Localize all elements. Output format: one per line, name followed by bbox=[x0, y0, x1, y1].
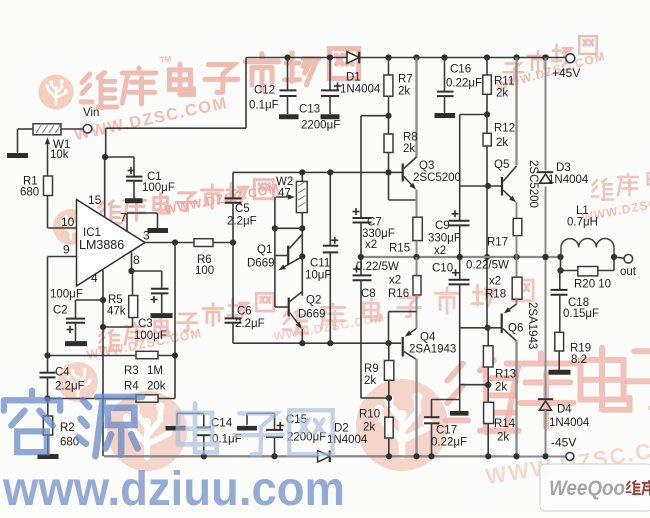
svg-text:100: 100 bbox=[195, 265, 214, 277]
svg-text:2SC5200: 2SC5200 bbox=[413, 172, 461, 184]
svg-text:100μF: 100μF bbox=[134, 330, 167, 342]
svg-text:1N4004: 1N4004 bbox=[548, 174, 589, 186]
svg-text:R19: R19 bbox=[570, 343, 591, 355]
svg-text:7: 7 bbox=[120, 211, 127, 225]
svg-text:100μF: 100μF bbox=[142, 182, 175, 194]
svg-text:0.22μF: 0.22μF bbox=[446, 78, 482, 90]
svg-text:C13: C13 bbox=[299, 104, 320, 116]
svg-text:C12: C12 bbox=[254, 85, 275, 97]
svg-text:1N4004: 1N4004 bbox=[549, 417, 590, 429]
svg-text:C5: C5 bbox=[235, 203, 250, 215]
svg-text:Q2: Q2 bbox=[306, 295, 321, 307]
svg-text:2.2μF: 2.2μF bbox=[235, 318, 265, 330]
svg-text:0.22μF: 0.22μF bbox=[431, 437, 467, 449]
svg-text:R14: R14 bbox=[494, 418, 516, 430]
svg-text:0.7μH: 0.7μH bbox=[567, 217, 598, 229]
svg-text:C16: C16 bbox=[450, 64, 471, 76]
svg-text:x2: x2 bbox=[389, 275, 401, 287]
svg-text:C8: C8 bbox=[361, 288, 376, 300]
svg-text:D4: D4 bbox=[557, 404, 572, 416]
svg-text:R12: R12 bbox=[494, 123, 515, 135]
svg-text:15: 15 bbox=[88, 193, 102, 207]
svg-text:8: 8 bbox=[133, 253, 140, 267]
svg-text:2SA1943: 2SA1943 bbox=[409, 344, 456, 356]
svg-text:WeeQoo: WeeQoo bbox=[549, 477, 625, 500]
svg-text:3: 3 bbox=[143, 229, 150, 243]
svg-text:680: 680 bbox=[20, 187, 39, 199]
svg-text:20k: 20k bbox=[147, 381, 166, 393]
svg-text:D1: D1 bbox=[346, 72, 361, 84]
svg-text:2k: 2k bbox=[364, 375, 376, 387]
svg-text:L1: L1 bbox=[576, 205, 589, 217]
svg-text:R15: R15 bbox=[389, 243, 410, 255]
svg-text:R10: R10 bbox=[359, 409, 380, 421]
svg-text:W2: W2 bbox=[276, 176, 293, 188]
svg-text:Q3: Q3 bbox=[419, 160, 434, 172]
svg-text:8.2: 8.2 bbox=[571, 354, 587, 366]
svg-text:x2: x2 bbox=[365, 239, 377, 251]
svg-text:C10: C10 bbox=[432, 263, 453, 275]
svg-text:1N4004: 1N4004 bbox=[340, 84, 381, 96]
svg-text:C4: C4 bbox=[55, 367, 70, 379]
svg-text:R13: R13 bbox=[495, 369, 516, 381]
svg-text:R5: R5 bbox=[108, 294, 123, 306]
svg-text:TM: TM bbox=[159, 54, 172, 65]
svg-text:47k: 47k bbox=[107, 306, 126, 318]
svg-text:R3: R3 bbox=[124, 365, 139, 377]
svg-text:R4: R4 bbox=[124, 381, 139, 393]
svg-text:2.2μF: 2.2μF bbox=[227, 216, 257, 228]
svg-text:C2: C2 bbox=[53, 305, 68, 317]
svg-text:C9: C9 bbox=[435, 220, 450, 232]
svg-text:0.15μF: 0.15μF bbox=[563, 308, 599, 320]
svg-text:R11: R11 bbox=[494, 76, 514, 88]
svg-text:R18: R18 bbox=[485, 289, 506, 301]
svg-text:0.22/5W: 0.22/5W bbox=[466, 260, 509, 272]
svg-text:D2: D2 bbox=[334, 423, 349, 435]
svg-text:47: 47 bbox=[278, 188, 291, 200]
svg-text:D669: D669 bbox=[298, 309, 326, 321]
svg-text:R9: R9 bbox=[364, 363, 379, 375]
svg-text:C17: C17 bbox=[436, 425, 457, 437]
svg-text:10μF: 10μF bbox=[305, 270, 331, 282]
svg-text:2k: 2k bbox=[398, 86, 410, 98]
svg-text:100μF: 100μF bbox=[50, 289, 83, 301]
svg-text:x2: x2 bbox=[489, 276, 501, 288]
svg-text:2k: 2k bbox=[495, 382, 507, 394]
svg-text:2k: 2k bbox=[496, 137, 508, 149]
svg-text:R8: R8 bbox=[403, 132, 418, 144]
svg-text:R7: R7 bbox=[398, 74, 413, 86]
svg-text:D3: D3 bbox=[556, 162, 571, 174]
svg-text:4: 4 bbox=[91, 271, 98, 285]
svg-text:1M: 1M bbox=[147, 365, 163, 377]
svg-text:Q6: Q6 bbox=[508, 323, 523, 335]
svg-text:2SA1943: 2SA1943 bbox=[526, 302, 538, 349]
svg-text:2k: 2k bbox=[363, 422, 375, 434]
svg-text:x2: x2 bbox=[434, 245, 446, 257]
svg-text:10k: 10k bbox=[50, 149, 69, 161]
svg-text:10: 10 bbox=[61, 215, 75, 229]
svg-text:2.2μF: 2.2μF bbox=[55, 381, 85, 393]
svg-text:C3: C3 bbox=[138, 318, 153, 330]
svg-text:0.22/5W: 0.22/5W bbox=[356, 261, 399, 273]
svg-text:Q5: Q5 bbox=[494, 159, 509, 171]
svg-text:2200μF: 2200μF bbox=[301, 120, 340, 132]
svg-text:R17: R17 bbox=[487, 237, 508, 249]
svg-text:-45V: -45V bbox=[551, 436, 576, 450]
svg-text:2k: 2k bbox=[403, 143, 415, 155]
svg-text:2SC5200: 2SC5200 bbox=[527, 160, 539, 208]
svg-text:R16: R16 bbox=[388, 288, 409, 300]
svg-text:out: out bbox=[620, 266, 637, 278]
svg-text:2k: 2k bbox=[497, 432, 509, 444]
svg-text:D669: D669 bbox=[247, 258, 275, 270]
svg-text:C7: C7 bbox=[367, 217, 382, 229]
svg-text:2k: 2k bbox=[496, 88, 508, 100]
svg-text:Vin: Vin bbox=[83, 107, 99, 119]
svg-text:Q1: Q1 bbox=[257, 244, 272, 256]
svg-text:LM3886: LM3886 bbox=[79, 238, 124, 252]
svg-text:+45V: +45V bbox=[552, 66, 580, 80]
svg-text:R20 10: R20 10 bbox=[574, 279, 611, 291]
svg-text:9: 9 bbox=[63, 243, 70, 257]
svg-text:C6: C6 bbox=[237, 306, 252, 318]
svg-text:www.dziuu.com: www.dziuu.com bbox=[2, 463, 345, 513]
svg-text:R2: R2 bbox=[60, 422, 75, 434]
svg-text:0.1μF: 0.1μF bbox=[249, 100, 279, 112]
svg-text:C11: C11 bbox=[310, 258, 330, 270]
svg-text:Q4: Q4 bbox=[420, 332, 436, 344]
svg-text:330μF: 330μF bbox=[428, 233, 461, 245]
